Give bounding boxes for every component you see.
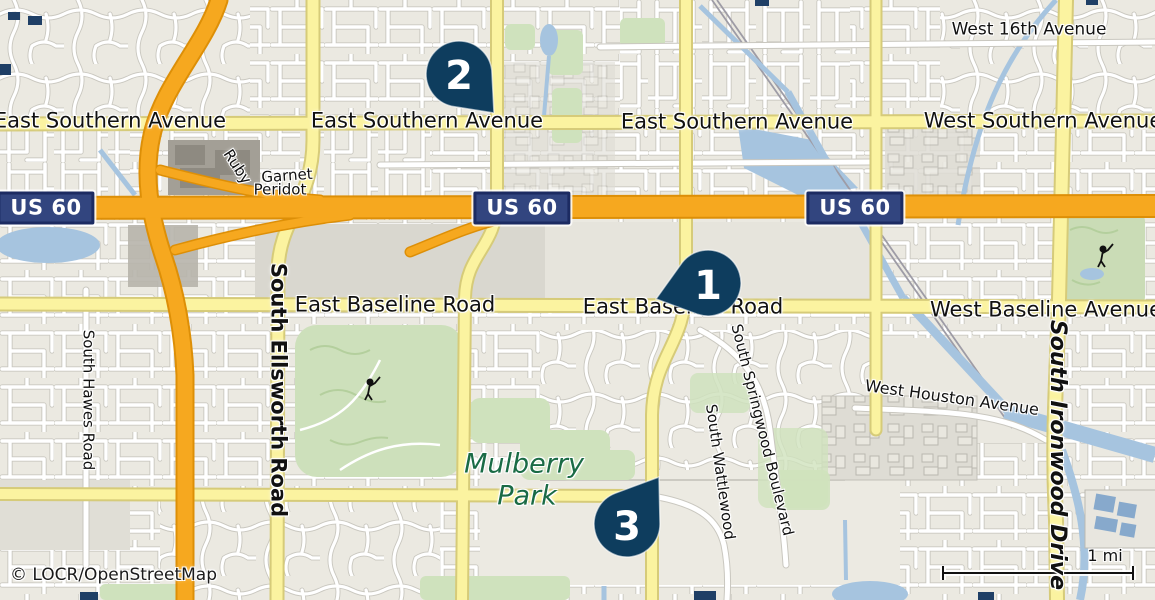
marker-3-number: 3: [613, 504, 641, 550]
marker-1-number: 1: [694, 263, 722, 309]
map-marker-1[interactable]: 1: [656, 250, 741, 316]
map-viewport[interactable]: East Southern Avenue East Southern Avenu…: [0, 0, 1155, 600]
map-marker-3[interactable]: 3: [594, 477, 660, 557]
map-marker-2[interactable]: 2: [426, 41, 494, 113]
marker-layer: 1 2 3: [0, 0, 1155, 600]
marker-2-number: 2: [445, 53, 473, 99]
